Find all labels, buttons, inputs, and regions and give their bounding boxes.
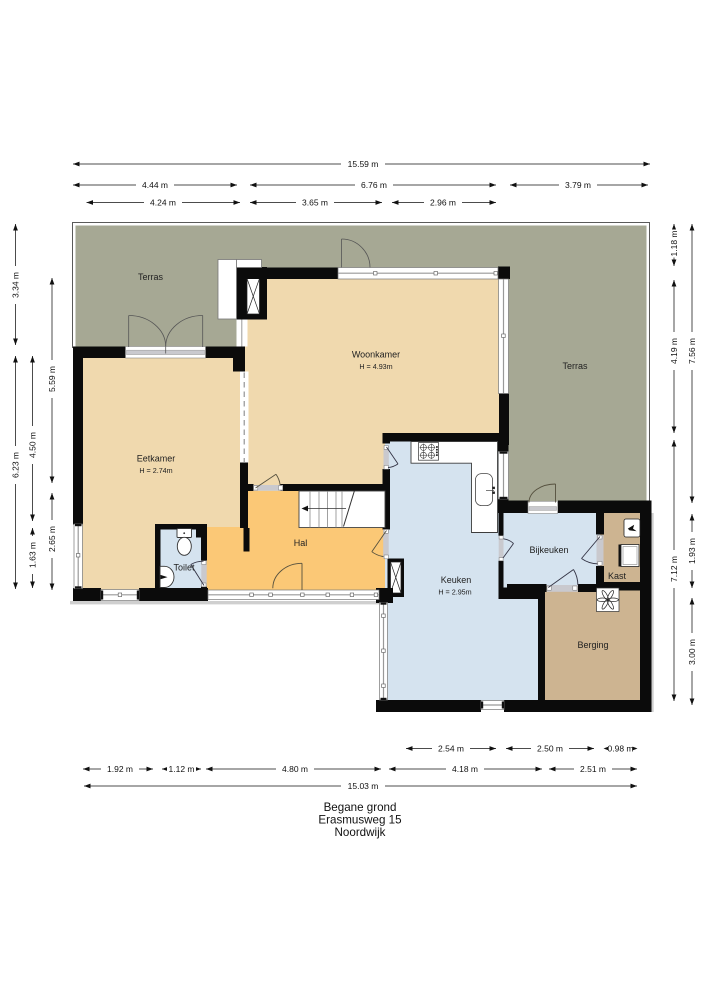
svg-text:15.59 m: 15.59 m bbox=[348, 159, 379, 169]
svg-text:6.23 m: 6.23 m bbox=[11, 452, 21, 478]
svg-text:1.12 m: 1.12 m bbox=[169, 764, 195, 774]
svg-text:3.00 m: 3.00 m bbox=[687, 639, 697, 665]
svg-text:4.50 m: 4.50 m bbox=[28, 432, 38, 458]
svg-text:2.54 m: 2.54 m bbox=[438, 744, 464, 754]
svg-text:0.98 m: 0.98 m bbox=[608, 744, 634, 754]
svg-text:Terras: Terras bbox=[138, 272, 164, 282]
svg-text:Eetkamer: Eetkamer bbox=[137, 454, 176, 464]
svg-text:2.50 m: 2.50 m bbox=[537, 744, 563, 754]
svg-text:Toilet: Toilet bbox=[173, 563, 195, 573]
svg-text:1.93 m: 1.93 m bbox=[687, 538, 697, 564]
svg-text:4.44 m: 4.44 m bbox=[142, 180, 168, 190]
svg-text:H = 2.95m: H = 2.95m bbox=[438, 588, 471, 597]
svg-text:15.03 m: 15.03 m bbox=[348, 781, 379, 791]
svg-text:2.65 m: 2.65 m bbox=[47, 526, 57, 552]
svg-text:4.19 m: 4.19 m bbox=[669, 338, 679, 364]
svg-text:Hal: Hal bbox=[294, 538, 308, 548]
svg-text:3.79 m: 3.79 m bbox=[565, 180, 591, 190]
svg-text:2.96 m: 2.96 m bbox=[430, 198, 456, 208]
svg-text:1.18 m: 1.18 m bbox=[669, 231, 679, 257]
svg-text:Erasmusweg 15: Erasmusweg 15 bbox=[318, 814, 401, 827]
svg-text:Kast: Kast bbox=[608, 571, 627, 581]
svg-text:4.18 m: 4.18 m bbox=[452, 764, 478, 774]
svg-text:Berging: Berging bbox=[577, 640, 608, 650]
svg-text:1.63 m: 1.63 m bbox=[28, 542, 38, 568]
svg-text:Woonkamer: Woonkamer bbox=[352, 350, 400, 360]
svg-text:4.80 m: 4.80 m bbox=[282, 764, 308, 774]
svg-text:Bijkeuken: Bijkeuken bbox=[529, 545, 568, 555]
svg-text:7.56 m: 7.56 m bbox=[687, 338, 697, 364]
svg-text:3.65 m: 3.65 m bbox=[302, 198, 328, 208]
svg-text:1.92 m: 1.92 m bbox=[107, 764, 133, 774]
svg-text:Terras: Terras bbox=[562, 361, 588, 371]
svg-text:7.12 m: 7.12 m bbox=[669, 556, 679, 582]
svg-text:3.34 m: 3.34 m bbox=[11, 272, 21, 298]
svg-text:5.59 m: 5.59 m bbox=[47, 366, 57, 392]
svg-text:4.24 m: 4.24 m bbox=[150, 198, 176, 208]
svg-text:H = 2.74m: H = 2.74m bbox=[139, 466, 172, 475]
svg-text:Noordwijk: Noordwijk bbox=[335, 826, 386, 839]
svg-text:Begane grond: Begane grond bbox=[324, 801, 397, 814]
svg-text:Keuken: Keuken bbox=[441, 575, 472, 585]
svg-text:2.51 m: 2.51 m bbox=[580, 764, 606, 774]
svg-text:H = 4.93m: H = 4.93m bbox=[359, 362, 392, 371]
svg-text:6.76 m: 6.76 m bbox=[361, 180, 387, 190]
